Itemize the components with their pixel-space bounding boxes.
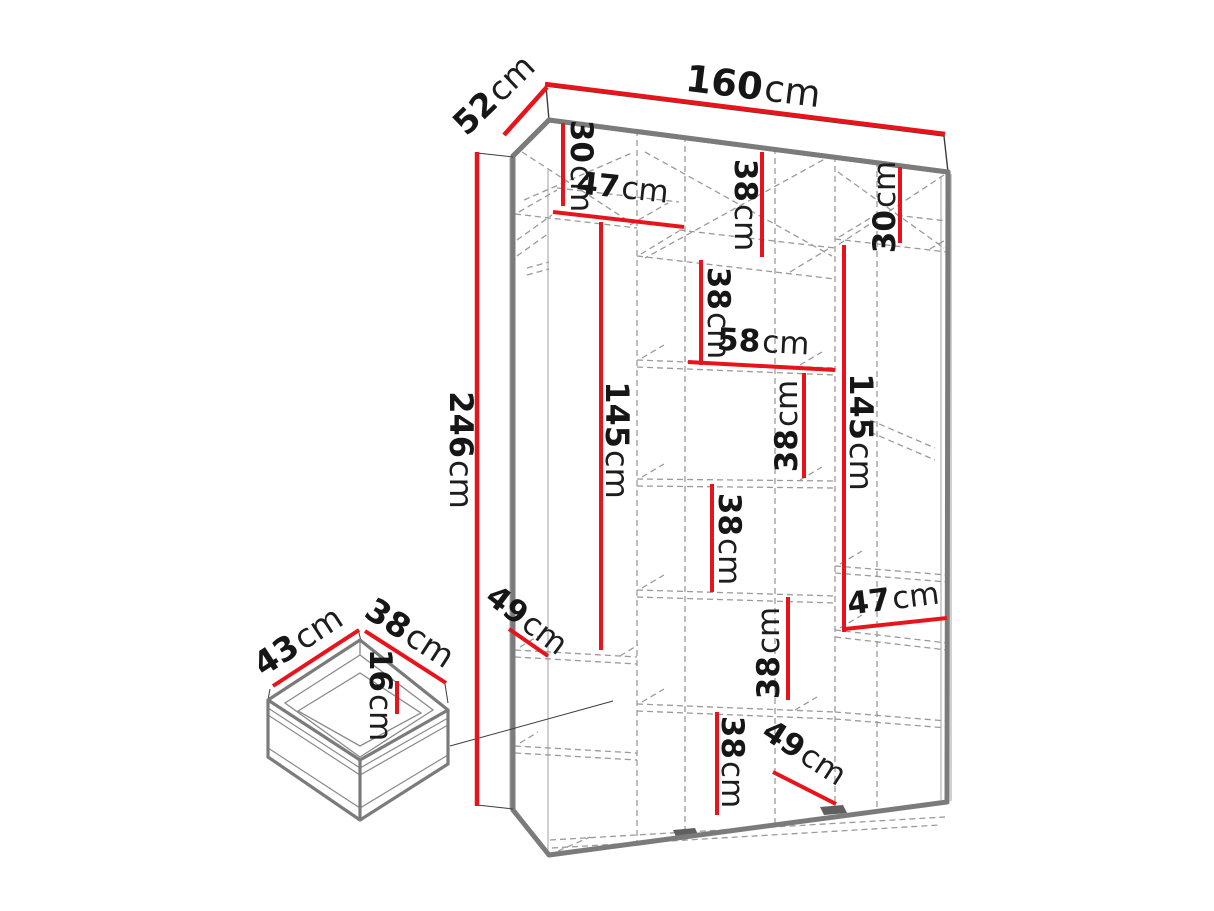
wardrobe-dimension-diagram: 52cm 160cm 30cm 47cm 38cm 30cm 38cm 58cm… bbox=[0, 0, 1214, 911]
label-right-hanging-height: 145cm bbox=[842, 373, 880, 491]
label-right-top-gap: 30cm bbox=[867, 161, 903, 253]
label-depth-top: 52cm bbox=[445, 46, 543, 142]
label-drawer-height: 16cm bbox=[362, 649, 398, 741]
label-mid-cubby-3: 38cm bbox=[769, 380, 805, 472]
label-left-hanging-height: 145cm bbox=[598, 381, 636, 499]
label-mid-cubby-5: 38cm bbox=[751, 607, 787, 699]
diagram-canvas: 52cm 160cm 30cm 47cm 38cm 30cm 38cm 58cm… bbox=[0, 0, 1214, 911]
label-mid-cubby-6: 38cm bbox=[714, 716, 750, 808]
label-mid-cubby-4: 38cm bbox=[711, 493, 747, 585]
label-mid-shelf-width: 58cm bbox=[716, 322, 810, 363]
label-mid-cubby-1: 38cm bbox=[727, 159, 763, 251]
label-total-height: 246cm bbox=[442, 391, 480, 509]
